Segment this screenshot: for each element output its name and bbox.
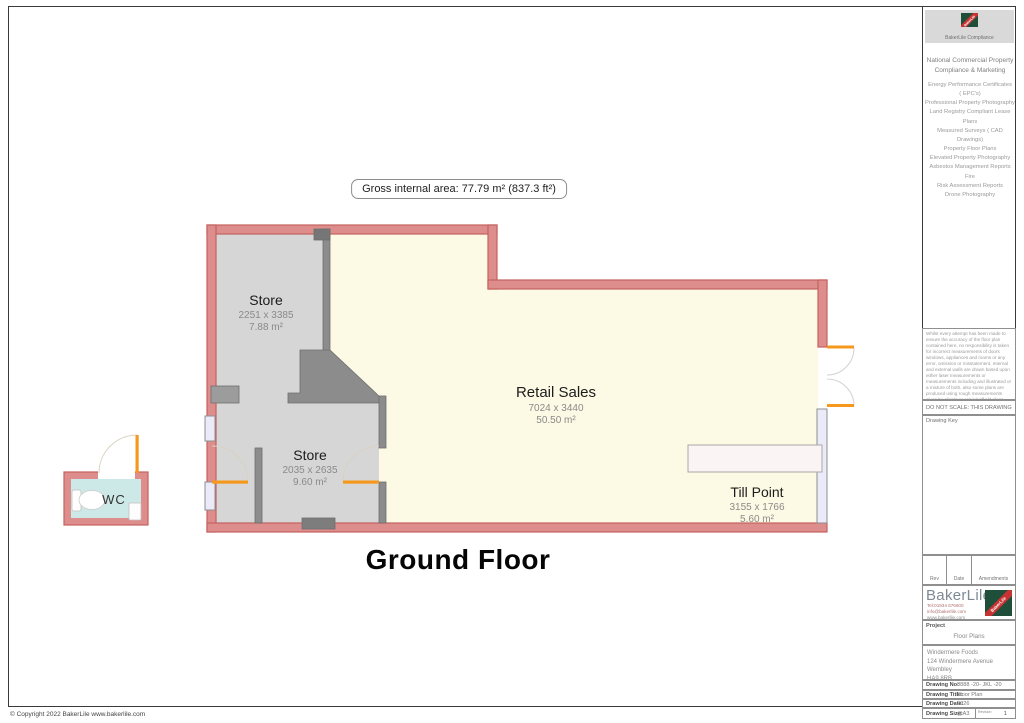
services-list: Energy Performance Certificates ( EPC's)… — [924, 81, 1016, 200]
service-item: Risk Assessment Reports — [924, 182, 1016, 191]
revision-box: Revision 1 — [975, 709, 1015, 718]
page: Gross internal area: 77.79 m² (837.3 ft²… — [0, 0, 1024, 723]
company-name: BakerLile — [926, 587, 991, 604]
drawing-title-value: Floor Plan — [957, 692, 983, 698]
client-address-box: Windermere Foods 124 Windermere Avenue W… — [922, 645, 1016, 680]
copyright-text: © Copyright 2022 BakerLile www.bakerlile… — [10, 711, 145, 718]
drawing-key-box: Drawing Key — [922, 415, 1016, 555]
drawing-no-label: Drawing No: — [926, 682, 959, 688]
compliance-logo-caption: BakerLile Compliance — [925, 35, 1014, 41]
compliance-logo-box: BakerLile BakerLile Compliance — [925, 10, 1014, 43]
service-item: Measured Surveys ( CAD Drawings) — [924, 127, 1016, 145]
service-item: ( EPC's) — [924, 90, 1016, 99]
revision-table: Rev Date Amendments — [922, 555, 1016, 585]
service-item: Property Floor Plans — [924, 145, 1016, 154]
amendments-column-header: Amendments — [972, 576, 1015, 582]
disclaimer-box: Whilst every attempt has been made to en… — [922, 328, 1016, 400]
logo-band-text: BakerLile — [961, 13, 978, 27]
project-value: Floor Plans — [923, 633, 1015, 640]
client-address: 124 Windermere Avenue — [927, 658, 1015, 667]
service-item: Energy Performance Certificates — [924, 81, 1016, 90]
company-title-block: BakerLile Tel:01934 676600 info@bakerlil… — [922, 585, 1016, 620]
amendments-column: Amendments — [972, 556, 1015, 584]
client-name: Windermere Foods — [927, 649, 1015, 658]
service-item: Land Registry Compliant Lease Plans — [924, 108, 1016, 126]
logo-band-text: BakerLile — [985, 590, 1012, 616]
drawing-date-row: Drawing Date: 2026 — [922, 699, 1016, 708]
date-column-header: Date — [947, 576, 971, 582]
service-item: Professional Property Photography — [924, 99, 1016, 108]
date-column: Date — [947, 556, 972, 584]
bakerlile-logo-icon: BakerLile — [985, 590, 1012, 616]
drawing-size-row: Drawing Size: @A3 Revision 1 — [922, 708, 1016, 719]
rev-column: Rev — [923, 556, 947, 584]
bakerlile-compliance-logo-icon: BakerLile — [961, 13, 978, 27]
revision-value: 1 — [1004, 711, 1007, 717]
services-header: National Commercial Property Compliance … — [924, 56, 1016, 77]
drawing-title-row: Drawing Title: Floor Plan — [922, 690, 1016, 699]
drawing-no-row: Drawing No: 8888 -20- JKL -20 — [922, 680, 1016, 690]
company-tel: Tel:01934 676600 — [927, 603, 964, 608]
client-town: Wembley — [927, 666, 1015, 675]
page-border — [8, 6, 1016, 707]
drawing-size-value: @A3 — [957, 711, 970, 717]
drawing-date-value: 2026 — [957, 701, 969, 707]
service-item: Elevated Property Photography — [924, 154, 1016, 163]
service-item: Asbestos Management Reports Fire — [924, 163, 1016, 181]
project-label: Project — [926, 623, 945, 629]
revision-label: Revision — [978, 710, 991, 714]
service-item: Drone Photography — [924, 191, 1016, 200]
project-box: Project Floor Plans — [922, 620, 1016, 645]
rev-column-header: Rev — [923, 576, 946, 582]
do-not-scale-box: DO NOT SCALE: THIS DRAWING — [922, 400, 1016, 415]
drawing-no-value: 8888 -20- JKL -20 — [957, 682, 1002, 688]
company-email: info@bakerlile.com — [927, 609, 966, 614]
